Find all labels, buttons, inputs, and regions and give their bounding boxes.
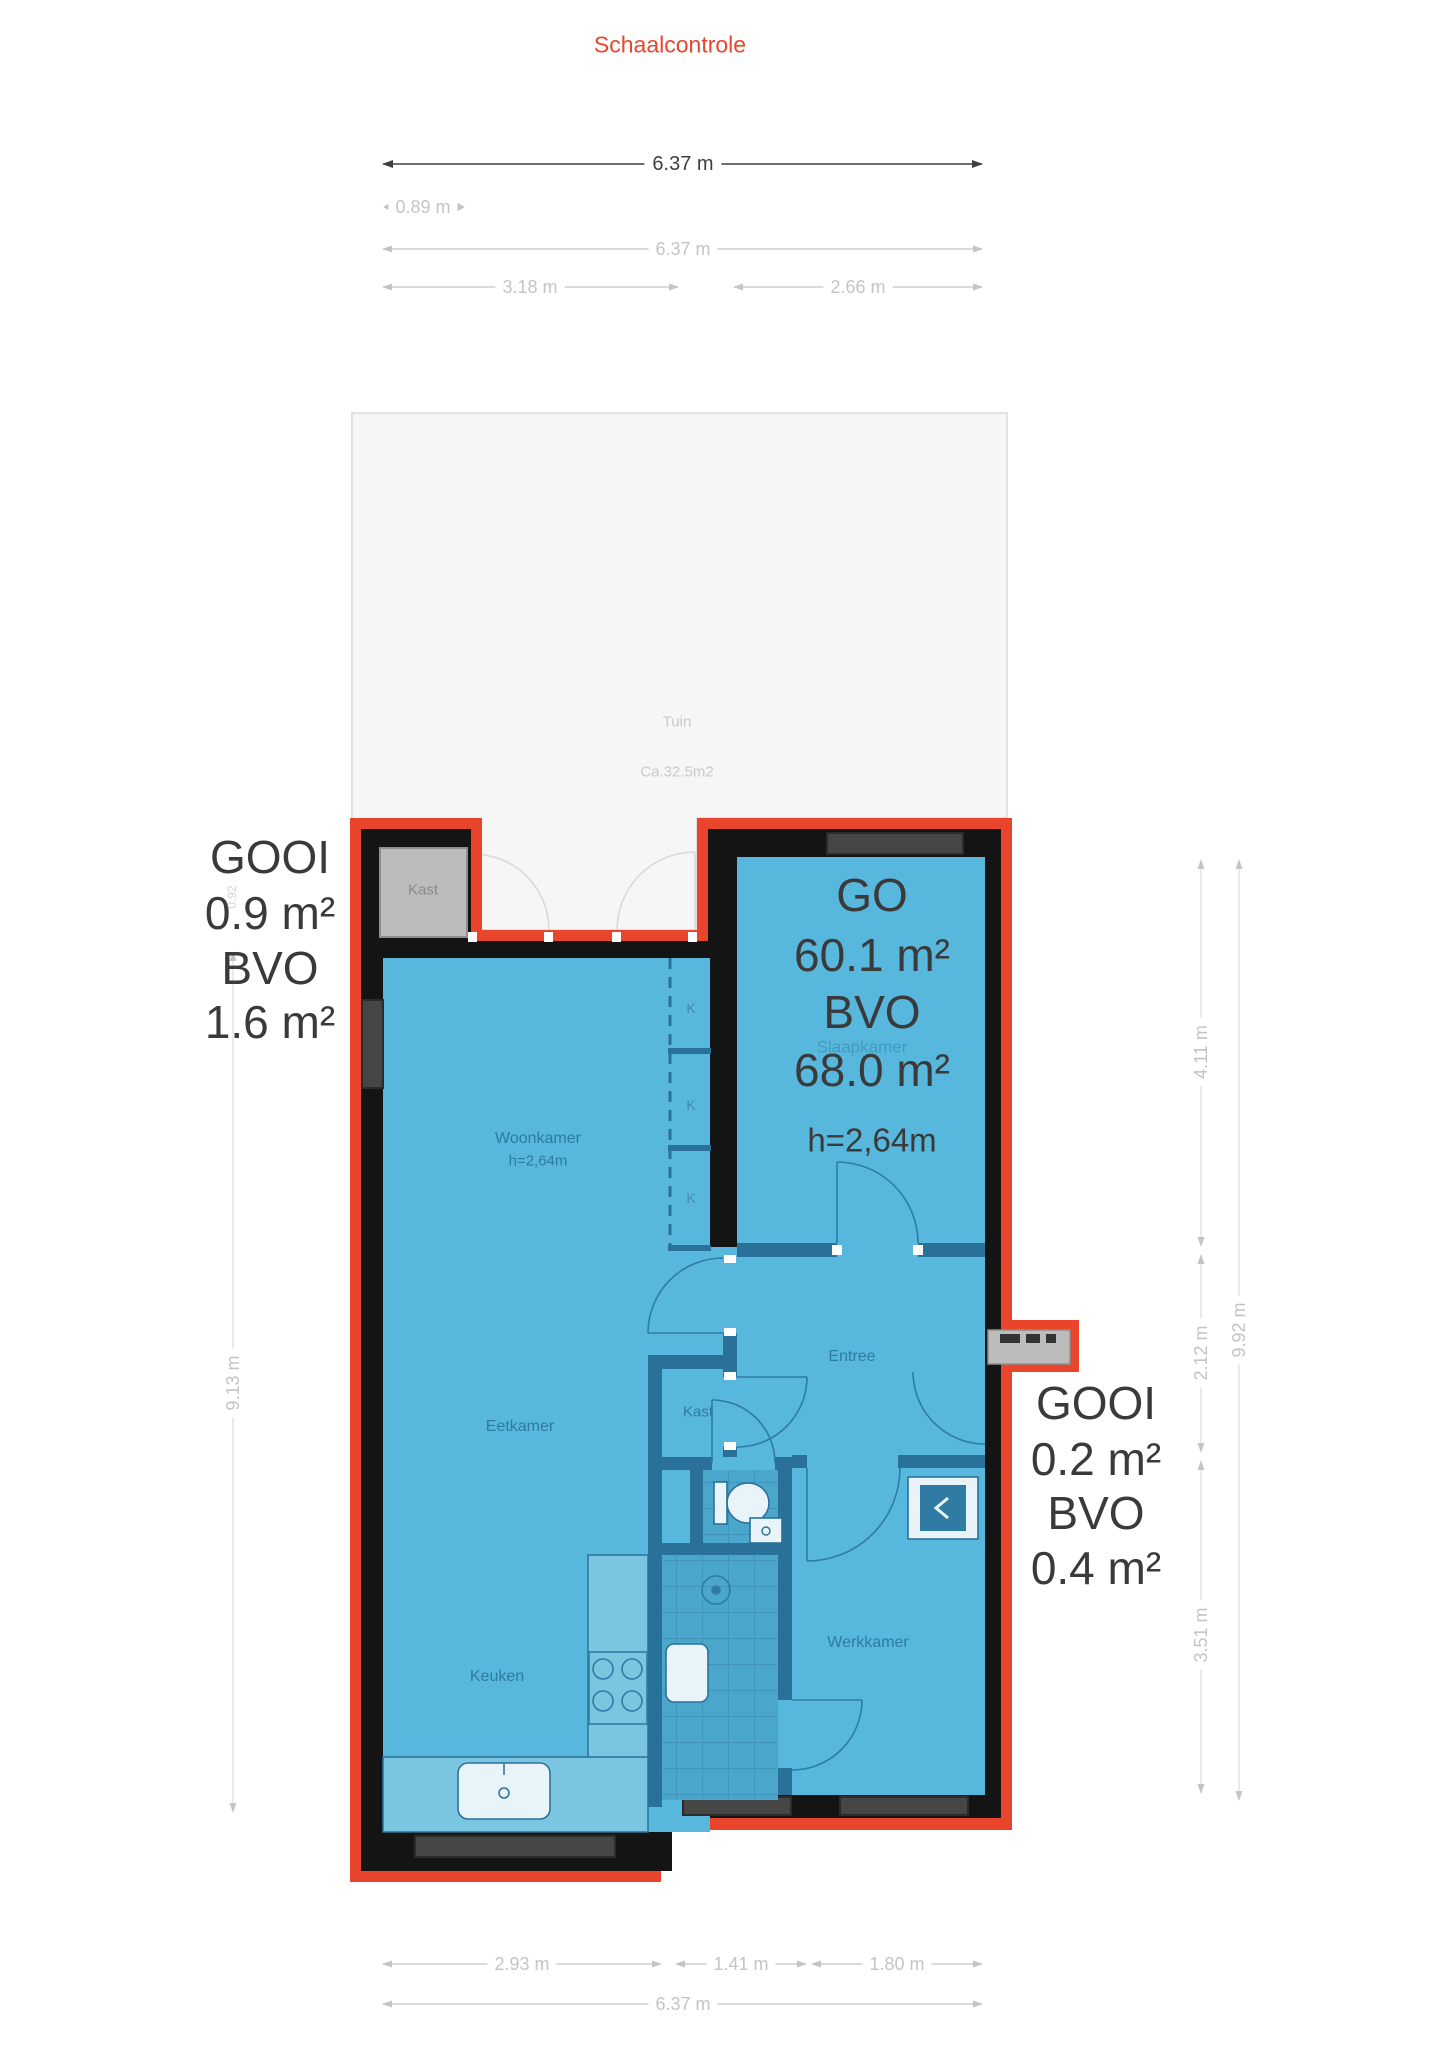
dim-top-right: 2.66 m (823, 278, 892, 296)
area-main-line4: 68.0 m² (794, 1047, 950, 1093)
dim-top-left: 3.18 m (495, 278, 564, 296)
dim-left-height: 9.13 m (224, 1348, 242, 1417)
room-woonkamer-height: h=2,64m (509, 1154, 568, 1169)
closet-k2: K (686, 1098, 695, 1112)
area-left-line1: GOOI (210, 834, 330, 880)
dim-bottom-full: 6.37 m (648, 1995, 717, 2013)
dim-right-seg3: 3.51 m (1192, 1600, 1210, 1669)
dim-bottom-right: 1.80 m (862, 1955, 931, 1973)
room-woonkamer: Woonkamer (495, 1131, 581, 1147)
room-entree: Entree (828, 1349, 875, 1365)
garden-label: Tuin (663, 715, 692, 730)
area-left-line4: 1.6 m² (205, 999, 335, 1045)
garden-area-label: Ca.32.5m2 (640, 765, 713, 780)
dim-bottom-mid: 1.41 m (706, 1955, 775, 1973)
closet-k1: K (686, 1001, 695, 1015)
dim-top-main: 6.37 m (644, 154, 721, 174)
dim-bump-height: 0.92 (226, 885, 238, 908)
floorplan-page: Schaalcontrole 6.37 m 0.89 m 6.37 m 3.18… (0, 0, 1448, 2048)
meter-bump (988, 1330, 1070, 1364)
room-keuken: Keuken (470, 1669, 524, 1685)
room-eetkamer: Eetkamer (486, 1419, 554, 1435)
dim-right-full: 9.92 m (1230, 1295, 1248, 1364)
area-main-height: h=2,64m (807, 1124, 936, 1157)
area-right-line4: 0.4 m² (1031, 1545, 1161, 1591)
area-main-line1: GO (836, 872, 908, 918)
area-main-line2: 60.1 m² (794, 932, 950, 978)
boiler-icon (908, 1477, 978, 1539)
room-werkkamer: Werkkamer (827, 1635, 909, 1651)
dim-right-seg2: 2.12 m (1192, 1318, 1210, 1387)
area-right-line1: GOOI (1036, 1380, 1156, 1426)
closet-k3: K (686, 1191, 695, 1205)
area-main-line3: BVO (823, 989, 920, 1035)
dim-top-full: 6.37 m (648, 240, 717, 258)
area-left-line3: BVO (221, 945, 318, 991)
dim-bottom-left: 2.93 m (487, 1955, 556, 1973)
page-title: Schaalcontrole (594, 34, 746, 57)
room-kast-bump: Kast (408, 883, 438, 898)
shower-tray (666, 1644, 708, 1702)
area-right-line3: BVO (1047, 1490, 1144, 1536)
sink-icon (458, 1763, 550, 1819)
dim-top-offset: 0.89 m (388, 198, 457, 216)
area-right-line2: 0.2 m² (1031, 1436, 1161, 1482)
dim-right-seg1: 4.11 m (1192, 1018, 1210, 1086)
room-kast-center: Kast (683, 1405, 713, 1420)
